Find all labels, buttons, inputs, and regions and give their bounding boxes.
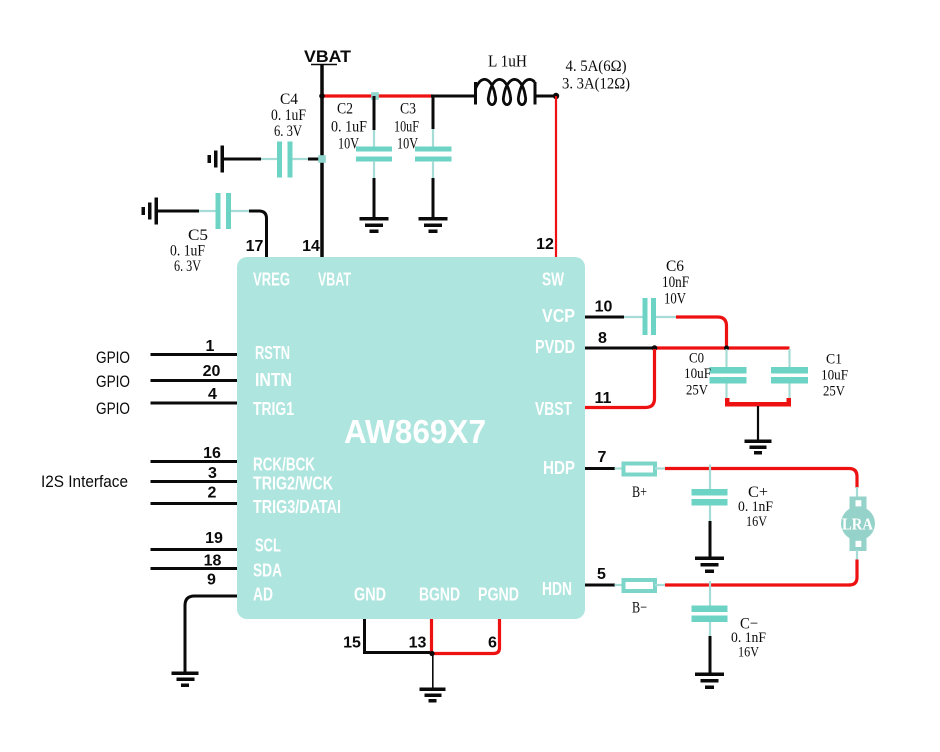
svg-text:10V: 10V	[338, 136, 359, 153]
svg-text:18: 18	[204, 553, 222, 570]
svg-text:VCP: VCP	[542, 306, 575, 326]
svg-text:7: 7	[598, 449, 607, 466]
svg-text:10: 10	[595, 299, 613, 316]
svg-text:TRIG2/WCK: TRIG2/WCK	[253, 474, 333, 494]
svg-text:C0: C0	[689, 351, 704, 367]
svg-text:20: 20	[203, 363, 221, 380]
svg-text:SCL: SCL	[255, 536, 281, 556]
svg-text:AD: AD	[253, 585, 273, 605]
svg-text:C5: C5	[188, 227, 208, 244]
svg-text:C6: C6	[666, 258, 684, 275]
svg-text:13: 13	[409, 635, 427, 652]
svg-text:3: 3	[208, 465, 217, 482]
svg-text:VBAT: VBAT	[318, 270, 351, 290]
svg-text:B−: B−	[632, 600, 647, 617]
svg-text:0. 1uF: 0. 1uF	[271, 107, 306, 124]
svg-text:16: 16	[203, 445, 221, 462]
svg-text:6. 3V: 6. 3V	[274, 123, 302, 140]
svg-text:5: 5	[597, 566, 606, 583]
svg-text:SW: SW	[542, 270, 564, 290]
svg-text:L 1uH: L 1uH	[488, 52, 527, 71]
svg-text:4: 4	[208, 386, 217, 403]
svg-text:GPIO: GPIO	[96, 348, 130, 367]
svg-text:1: 1	[206, 338, 215, 355]
svg-text:GND: GND	[354, 585, 386, 605]
svg-text:RSTN: RSTN	[255, 343, 290, 363]
svg-text:10uF: 10uF	[821, 368, 848, 384]
svg-text:C4: C4	[280, 91, 298, 108]
svg-text:10uF: 10uF	[684, 366, 711, 382]
svg-text:10uF: 10uF	[394, 119, 419, 136]
svg-text:10V: 10V	[664, 291, 686, 308]
svg-text:12: 12	[536, 236, 554, 253]
svg-text:16V: 16V	[738, 645, 759, 661]
svg-text:6: 6	[488, 635, 497, 652]
svg-text:C3: C3	[400, 101, 416, 118]
svg-text:TRIG1: TRIG1	[253, 399, 294, 419]
svg-text:10nF: 10nF	[662, 274, 689, 291]
svg-text:2: 2	[208, 485, 217, 502]
svg-text:SDA: SDA	[253, 561, 282, 581]
svg-text:HDP: HDP	[543, 458, 575, 478]
svg-text:3. 3A(12Ω): 3. 3A(12Ω)	[562, 76, 630, 93]
svg-text:15: 15	[343, 635, 361, 652]
svg-text:0. 1nF: 0. 1nF	[738, 499, 773, 515]
svg-text:RCK/BCK: RCK/BCK	[253, 455, 315, 475]
svg-text:HDN: HDN	[542, 579, 572, 599]
svg-text:PVDD: PVDD	[535, 337, 575, 357]
svg-text:INTN: INTN	[255, 370, 292, 390]
svg-text:PGND: PGND	[478, 585, 519, 605]
svg-text:17: 17	[246, 238, 264, 255]
svg-text:4. 5A(6Ω): 4. 5A(6Ω)	[566, 58, 627, 75]
svg-text:C2: C2	[337, 101, 353, 118]
svg-text:VREG: VREG	[253, 270, 290, 290]
svg-text:I2S Interface: I2S Interface	[41, 472, 128, 491]
svg-text:9: 9	[207, 572, 216, 589]
svg-text:GPIO: GPIO	[96, 372, 130, 391]
svg-text:16V: 16V	[746, 514, 767, 530]
svg-text:19: 19	[205, 530, 223, 547]
svg-text:8: 8	[598, 330, 607, 347]
svg-text:GPIO: GPIO	[96, 399, 130, 418]
svg-text:VBAT: VBAT	[304, 47, 352, 66]
svg-text:6. 3V: 6. 3V	[174, 258, 201, 275]
svg-text:0. 1uF: 0. 1uF	[331, 119, 367, 136]
svg-text:LRA: LRA	[842, 515, 874, 534]
svg-text:BGND: BGND	[419, 585, 460, 605]
svg-text:10V: 10V	[397, 136, 418, 153]
svg-text:AW869X7: AW869X7	[344, 413, 486, 450]
svg-text:B+: B+	[632, 484, 647, 501]
svg-text:0. 1uF: 0. 1uF	[170, 243, 205, 260]
svg-text:VBST: VBST	[535, 399, 572, 419]
svg-text:TRIG3/DATAI: TRIG3/DATAI	[253, 497, 341, 517]
svg-text:25V: 25V	[686, 383, 708, 399]
svg-text:25V: 25V	[823, 384, 845, 400]
svg-text:11: 11	[595, 390, 612, 407]
svg-text:C1: C1	[826, 352, 842, 368]
svg-text:14: 14	[302, 238, 320, 255]
